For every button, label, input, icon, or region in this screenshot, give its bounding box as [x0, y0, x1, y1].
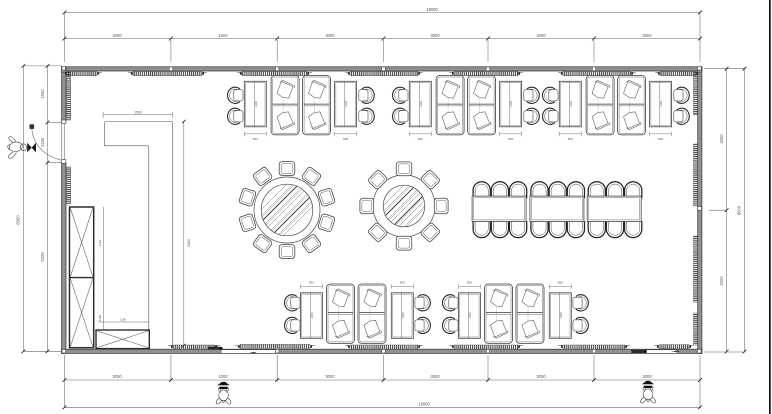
svg-text:3000: 3000: [536, 374, 546, 379]
svg-text:650: 650: [467, 280, 472, 284]
svg-text:650: 650: [343, 137, 348, 141]
svg-text:3000: 3000: [112, 374, 122, 379]
svg-text:650: 650: [400, 280, 405, 284]
svg-text:18000: 18000: [426, 7, 438, 12]
svg-text:3000: 3000: [642, 33, 652, 38]
svg-text:3000: 3000: [536, 33, 546, 38]
svg-text:650: 650: [658, 137, 663, 141]
svg-text:650: 650: [568, 137, 573, 141]
svg-text:1100: 1100: [120, 318, 127, 322]
svg-text:650: 650: [309, 280, 314, 284]
svg-text:1100: 1100: [98, 314, 102, 321]
svg-text:3000: 3000: [642, 374, 652, 379]
svg-text:1540: 1540: [40, 89, 45, 99]
svg-text:3000: 3000: [112, 33, 122, 38]
svg-text:5325: 5325: [40, 252, 45, 262]
svg-text:8000: 8000: [737, 205, 742, 215]
svg-text:650: 650: [508, 137, 513, 141]
svg-text:1000: 1000: [218, 374, 228, 379]
svg-text:3000: 3000: [430, 33, 440, 38]
svg-text:1500: 1500: [134, 110, 142, 114]
svg-text:650: 650: [418, 137, 423, 141]
svg-text:4000: 4000: [719, 134, 724, 144]
svg-text:3000: 3000: [325, 374, 335, 379]
svg-text:5365: 5365: [187, 239, 191, 247]
svg-text:650: 650: [558, 280, 563, 284]
svg-text:1135: 1135: [40, 137, 45, 147]
svg-text:3000: 3000: [325, 33, 335, 38]
svg-text:1000: 1000: [218, 33, 228, 38]
svg-text:2110: 2110: [98, 239, 102, 246]
svg-text:4000: 4000: [719, 276, 724, 286]
svg-text:18000: 18000: [418, 402, 430, 407]
svg-text:650: 650: [253, 137, 258, 141]
svg-text:8000: 8000: [16, 215, 21, 225]
svg-text:3000: 3000: [430, 374, 440, 379]
